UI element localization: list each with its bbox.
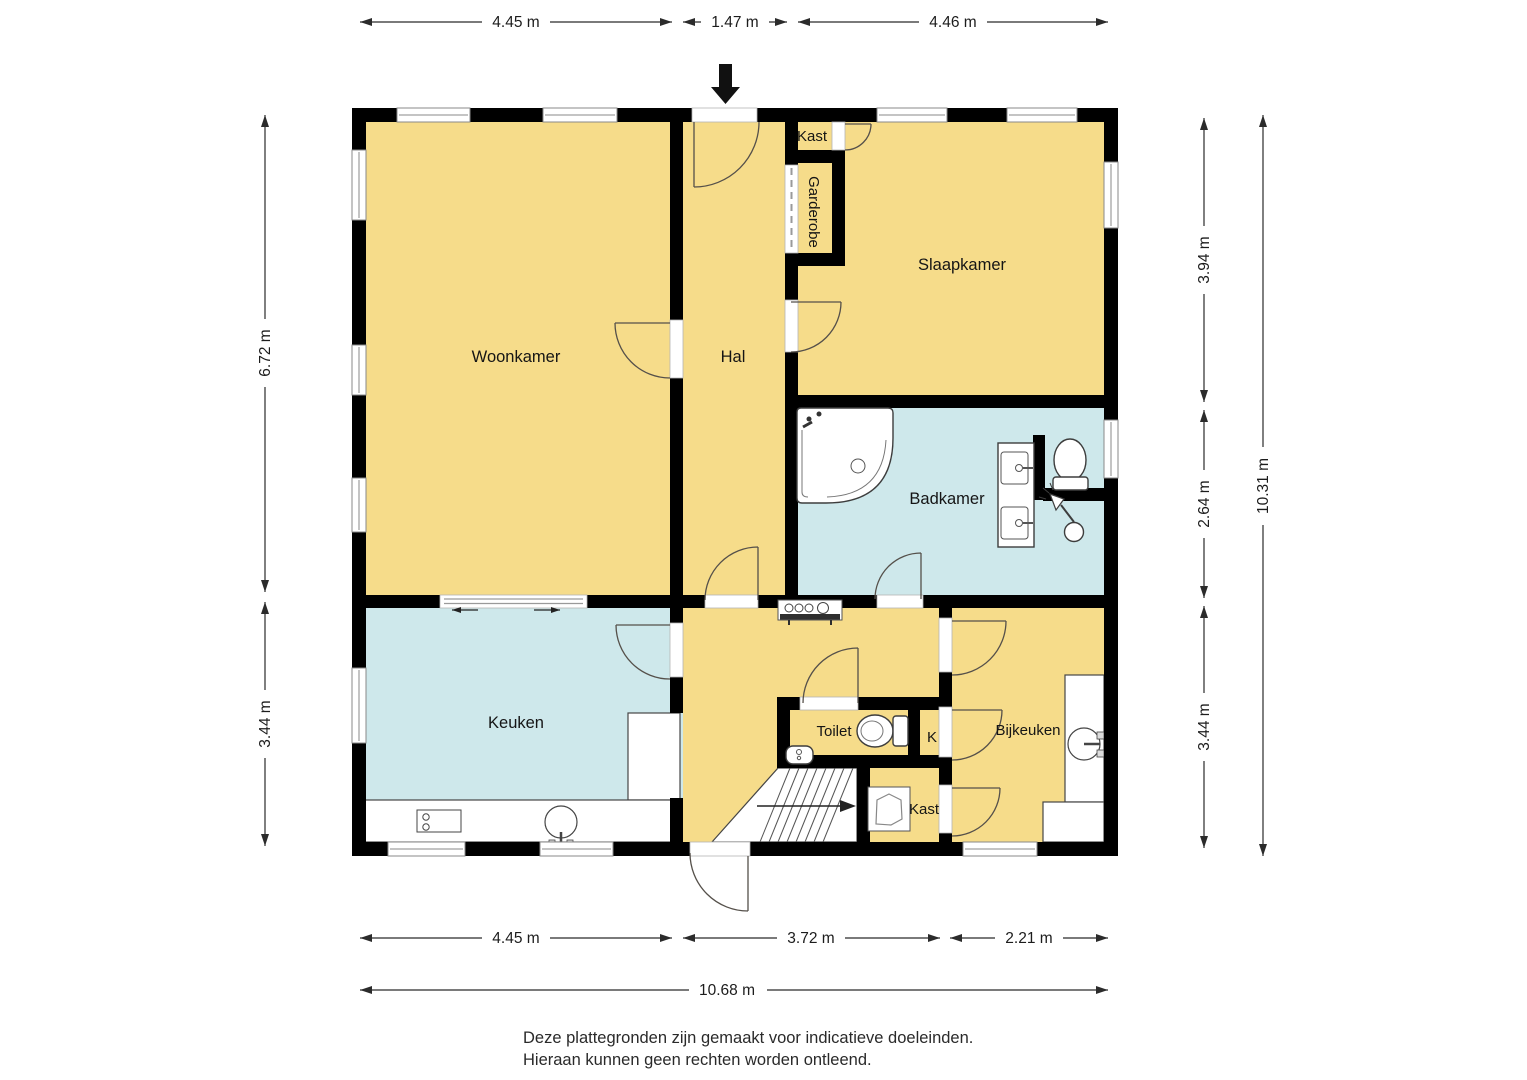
dim-top-2: 1.47 m — [711, 14, 758, 31]
dim-top-1: 4.45 m — [492, 14, 539, 31]
footer-disclaimer: Deze plattegronden zijn gemaakt voor ind… — [523, 1029, 973, 1069]
label-k: K — [927, 729, 937, 746]
floorplan-canvas: Woonkamer Hal Slaapkamer Badkamer Keuken… — [0, 0, 1527, 1080]
dim-left-1: 6.72 m — [257, 329, 274, 376]
dim-right-total: 10.31 m — [1255, 458, 1272, 514]
badkamer-toilet-icon — [1054, 439, 1086, 481]
footer-line-1: Deze plattegronden zijn gemaakt voor ind… — [523, 1029, 973, 1047]
label-slaapkamer: Slaapkamer — [918, 256, 1007, 274]
dim-bottom-total: 10.68 m — [699, 982, 755, 999]
front-door-threshold — [692, 108, 757, 122]
dim-right-3: 3.44 m — [1196, 703, 1213, 750]
dim-right-1: 3.94 m — [1196, 236, 1213, 283]
entrance-arrow-icon — [711, 64, 740, 104]
label-toilet: Toilet — [816, 723, 852, 740]
label-keuken: Keuken — [488, 714, 544, 732]
back-door — [690, 853, 748, 911]
kast-mv-unit — [868, 787, 910, 831]
label-woonkamer: Woonkamer — [472, 348, 561, 366]
label-bijkeuken: Bijkeuken — [995, 722, 1060, 739]
label-badkamer: Badkamer — [909, 490, 985, 508]
footer-line-2: Hieraan kunnen geen rechten worden ontle… — [523, 1051, 872, 1069]
label-garderobe: Garderobe — [805, 176, 822, 248]
toilet-sink-icon — [786, 746, 813, 764]
dim-top-3: 4.46 m — [929, 14, 976, 31]
label-kast-bottom: Kast — [909, 801, 940, 818]
label-kast-top: Kast — [797, 128, 828, 145]
dim-bottom-2: 3.72 m — [787, 930, 834, 947]
dim-bottom-3: 2.21 m — [1005, 930, 1052, 947]
back-door-threshold — [690, 842, 750, 856]
toilet-icon — [857, 715, 893, 747]
floorplan-page: Woonkamer Hal Slaapkamer Badkamer Keuken… — [0, 0, 1527, 1080]
label-hal: Hal — [721, 348, 746, 366]
dim-left-2: 3.44 m — [257, 700, 274, 747]
dim-bottom-1: 4.45 m — [492, 930, 539, 947]
dim-right-2: 2.64 m — [1196, 480, 1213, 527]
shower-icon — [1065, 523, 1084, 542]
